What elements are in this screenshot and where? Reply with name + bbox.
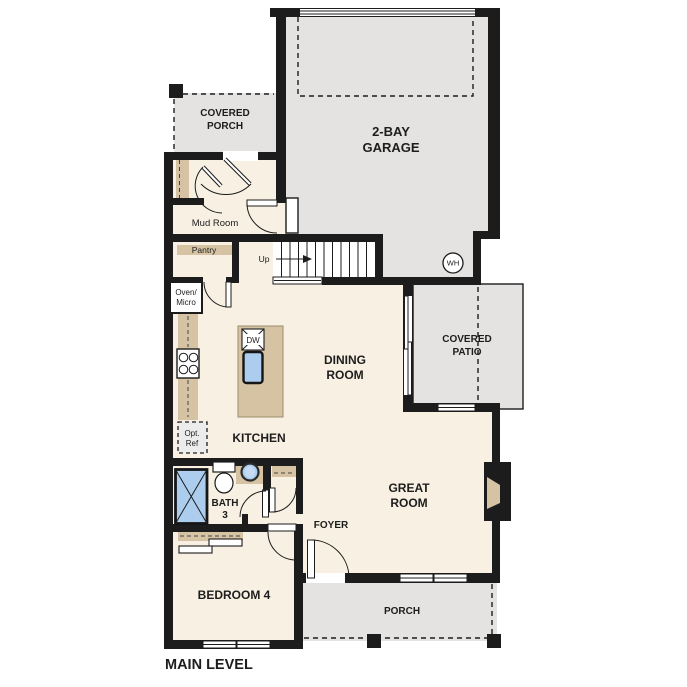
dining-label-1: DINING (324, 353, 366, 367)
porch-post-nw (169, 84, 183, 98)
pantry-label: Pantry (192, 245, 217, 255)
opt-ref-label-1: Opt. (184, 429, 199, 438)
garage-label-2: GARAGE (362, 140, 419, 155)
great-room-windows (400, 574, 467, 582)
patio-wall-window (438, 404, 475, 411)
garage-step (286, 198, 298, 233)
great-room-label-2: ROOM (390, 496, 427, 510)
fireplace (484, 462, 511, 521)
covered-patio-label-2: PATIO (452, 347, 481, 358)
bath3-label-1: BATH (211, 498, 238, 509)
bath-sink (242, 464, 259, 481)
island-sink (244, 352, 263, 383)
oven-micro-label-1: Oven/ (175, 288, 197, 297)
covered-porch-label-1: COVERED (200, 108, 249, 119)
cooktop (177, 349, 199, 378)
covered-porch-label-2: PORCH (207, 121, 243, 132)
oven-micro-label-2: Micro (176, 298, 196, 307)
great-room-label-1: GREAT (388, 481, 430, 495)
garage-door (300, 9, 475, 16)
bedroom4-label: BEDROOM 4 (198, 588, 271, 602)
floor-plan-drawing: WH COVERED PORCH 2-BAY GARAGE Mud Room P… (0, 0, 687, 687)
dining-label-2: ROOM (326, 368, 363, 382)
foyer-label: FOYER (314, 520, 349, 531)
stairs-up-label: Up (259, 254, 270, 264)
mudroom-bench (176, 157, 189, 202)
floor-plan: WH COVERED PORCH 2-BAY GARAGE Mud Room P… (0, 0, 687, 687)
water-heater-label: WH (447, 259, 460, 268)
kitchen-label: KITCHEN (232, 431, 285, 445)
porch-post-s1 (367, 634, 381, 648)
garage-label-1: 2-BAY (372, 124, 410, 139)
shower (176, 470, 208, 524)
toilet (213, 462, 235, 493)
porch-post-s2 (487, 634, 501, 648)
mud-room-label: Mud Room (192, 218, 239, 229)
main-level-title: MAIN LEVEL (165, 657, 253, 673)
dishwasher-label: DW (246, 336, 260, 345)
bath3-label-2: 3 (222, 510, 228, 521)
water-heater: WH (443, 253, 463, 273)
bedroom-windows (203, 641, 270, 648)
porch-label: PORCH (384, 606, 420, 617)
covered-patio-label-1: COVERED (442, 334, 491, 345)
opt-ref-label-2: Ref (186, 439, 199, 448)
patio-slider-window (404, 296, 412, 395)
